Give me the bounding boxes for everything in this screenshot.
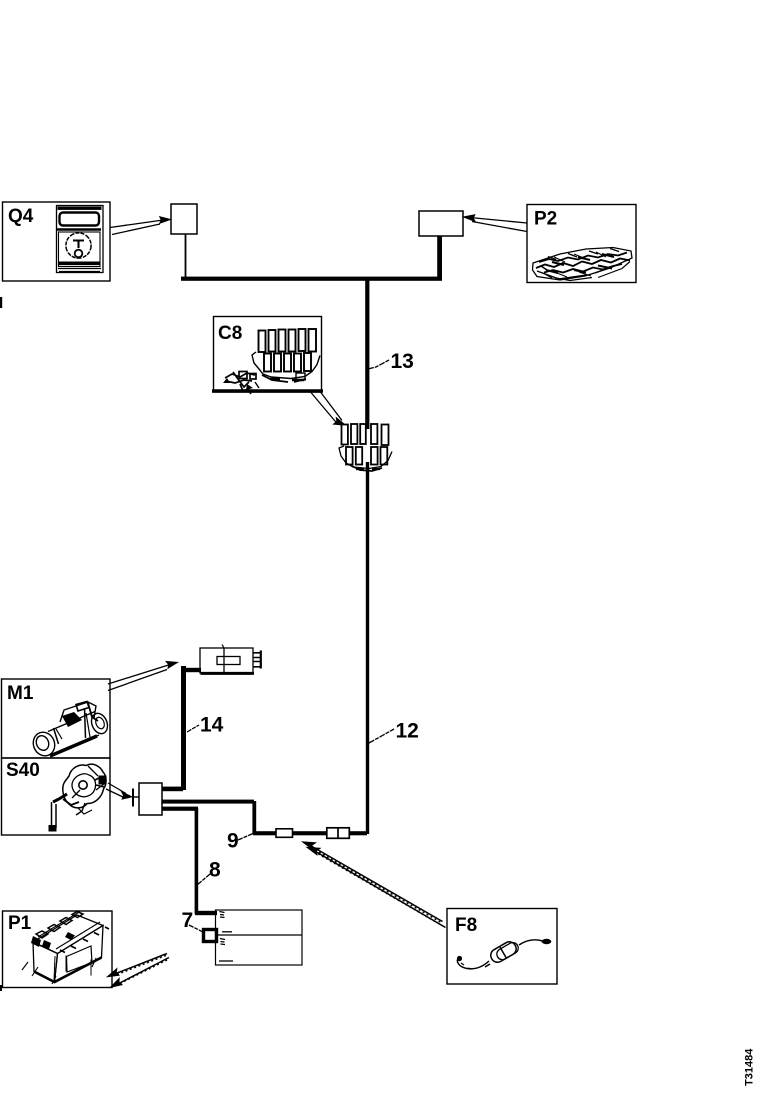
svg-text:T31484: T31484: [744, 1048, 756, 1086]
svg-text:9: 9: [227, 830, 239, 853]
svg-text:S40: S40: [6, 760, 40, 781]
svg-text:M1: M1: [7, 683, 34, 704]
svg-text:P1: P1: [8, 913, 32, 934]
svg-text:7: 7: [182, 909, 194, 932]
svg-text:12: 12: [396, 720, 419, 743]
svg-text:P2: P2: [534, 209, 557, 230]
svg-text:Q4: Q4: [8, 206, 34, 227]
svg-text:14: 14: [200, 714, 224, 737]
svg-text:C8: C8: [218, 323, 242, 344]
svg-text:13: 13: [391, 350, 414, 373]
svg-text:F8: F8: [455, 915, 477, 936]
svg-text:8: 8: [209, 859, 221, 882]
